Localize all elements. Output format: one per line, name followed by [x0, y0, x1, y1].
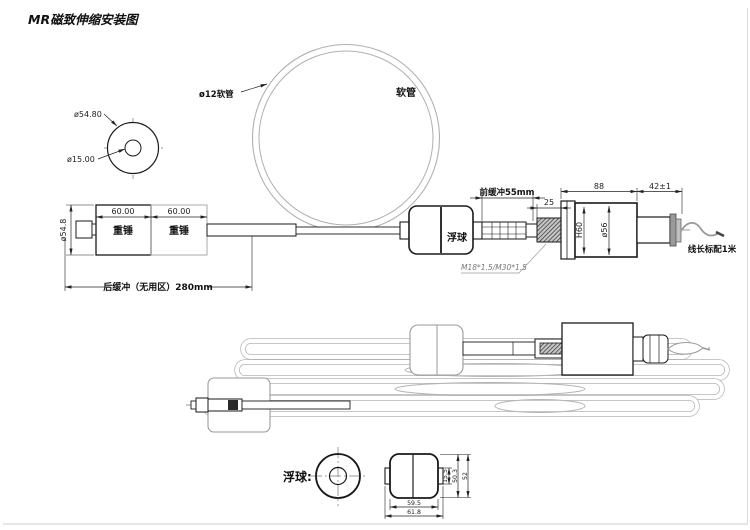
cable [681, 223, 719, 236]
float-right-cap [473, 222, 482, 239]
weight1-label: 重锤 [113, 224, 133, 237]
float-side-body [390, 454, 438, 498]
hose-name-label: 软管 [396, 86, 416, 99]
coiled-end-cap [196, 398, 208, 412]
coiled-view [186, 323, 727, 432]
weight-outer-dia-label: ø54.80 [74, 110, 102, 119]
float-body-height-dim: 50.3 [452, 469, 459, 483]
float-label: 浮球 [447, 231, 468, 244]
gland-len-dim: 25 [544, 198, 554, 207]
weight-hole-dia-label: ø15.00 [67, 155, 95, 164]
main-side-view: ø54.8 重锤 重锤 60.00 60.00 后缓冲（无用区）280mm 浮球 [59, 182, 737, 293]
rod-outer [207, 224, 296, 236]
thread-gland [537, 218, 561, 242]
coiled-sensor-body [562, 323, 633, 375]
page-frame [3, 8, 748, 524]
float-body-width-dim: 59.5 [407, 500, 421, 507]
rod-inner [296, 227, 402, 234]
float-hole-dim: 15.5 [442, 469, 449, 483]
body-height-dim: H60 [575, 222, 584, 238]
body-dia-dim: ø56 [600, 222, 609, 237]
hose-coil: ø12软管 软管 [199, 45, 440, 232]
weight2-width-dim: 60.00 [168, 207, 191, 216]
tail-len-dim: 42±1 [649, 182, 671, 191]
body-len-dim: 88 [594, 182, 604, 191]
coiled-cable-end [668, 342, 703, 354]
cable-ring-1 [670, 214, 676, 246]
coiled-rod-piston [228, 400, 238, 410]
coiled-rod-inner [242, 401, 350, 409]
installation-drawing: MR磁致伸缩安装图 ø54.80 ø15.00 ø12软管 软管 ø54.8 重… [0, 0, 750, 530]
coiled-thread [540, 343, 562, 354]
drawing-title: MR磁致伸缩安装图 [28, 12, 140, 27]
weight1-width-dim: 60.00 [112, 207, 135, 216]
sensor-tail [637, 217, 670, 243]
cable-note: 线长标配1米 [688, 244, 737, 255]
sensor-flange [561, 201, 575, 259]
coiled-ring [633, 337, 643, 361]
rear-buffer-dim: 后缓冲（无用区）280mm [103, 281, 213, 293]
float-overall-width-dim: 61.8 [407, 509, 421, 516]
cable-ring-2 [676, 219, 681, 242]
weight2-label: 重锤 [169, 224, 189, 237]
float-left-cap [400, 222, 409, 239]
front-buffer-dim: 前缓冲55mm [479, 187, 534, 198]
thread-spec-label: M18*1.5/M30*1.5 [461, 263, 527, 272]
weight-dia-dim: ø54.8 [59, 219, 68, 242]
weight-front-view: ø54.80 ø15.00 [67, 110, 163, 179]
drawing-page: MR磁致伸缩安装图 ø54.80 ø15.00 ø12软管 软管 ø54.8 重… [0, 0, 750, 530]
hose-dia-label: ø12软管 [199, 89, 234, 100]
float-detail-caption: 浮球: [283, 469, 312, 484]
weight-hole-circle [125, 140, 141, 156]
coiled-end-tip [191, 401, 196, 409]
float-detail-view: 浮球: 15.5 50.3 52 59.5 61.8 [283, 447, 471, 519]
coiled-front-rod [463, 342, 535, 355]
rear-end-cap [76, 221, 92, 238]
rod-step [526, 224, 537, 237]
coiled-connector [643, 335, 668, 363]
float-overall-height-dim: 52 [462, 472, 469, 480]
front-rod [482, 222, 526, 239]
